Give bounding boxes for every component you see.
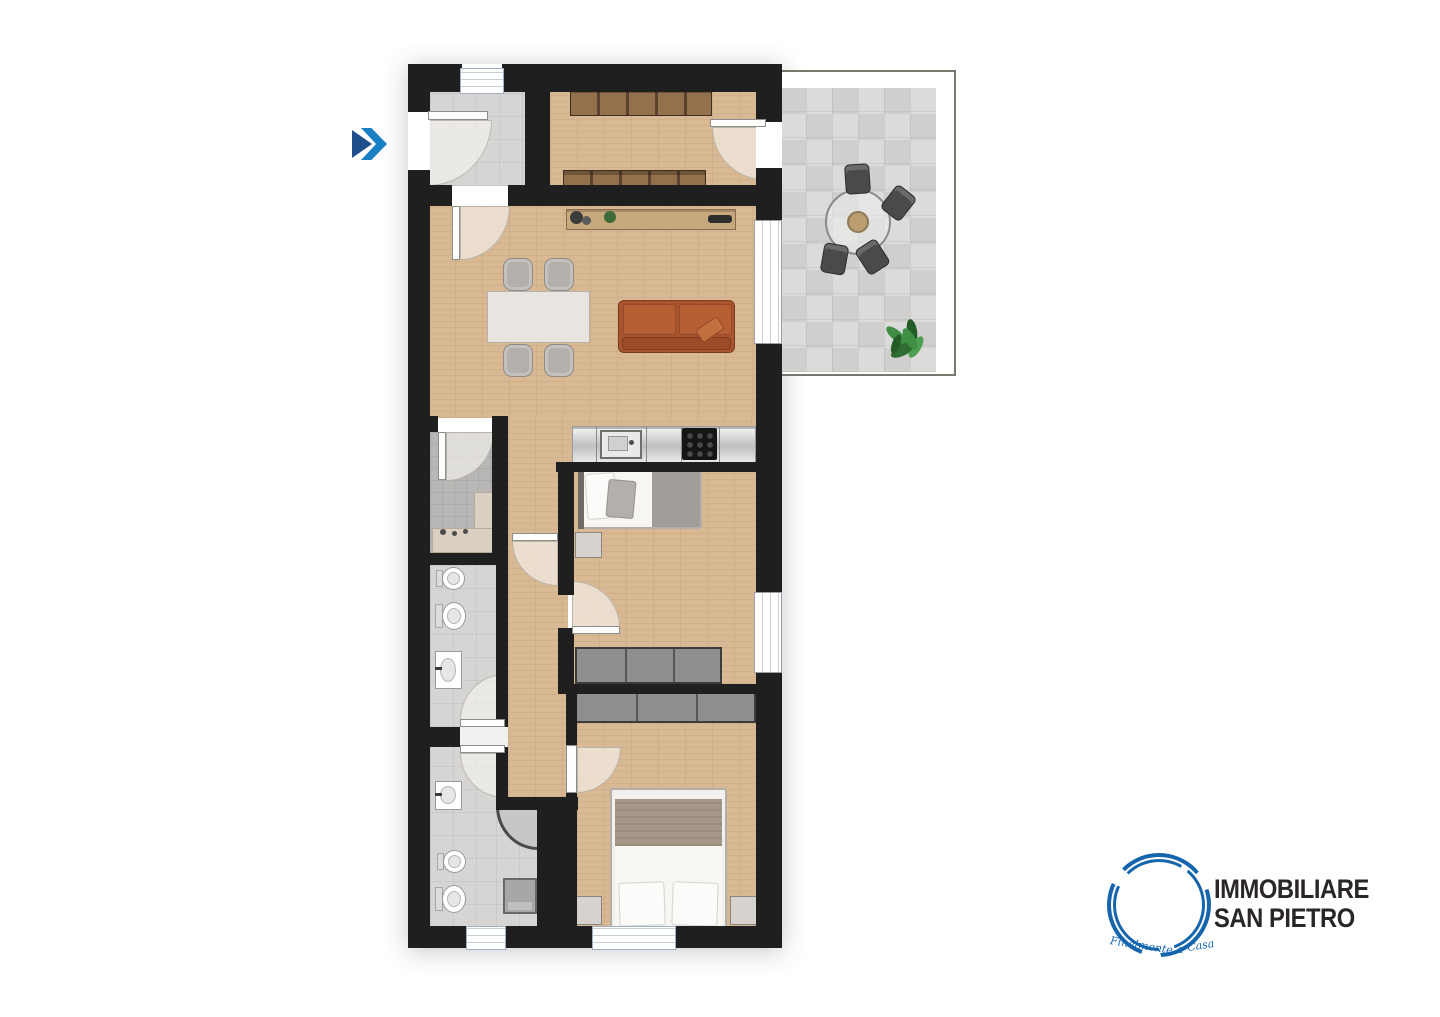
wall (408, 727, 460, 747)
dining-chair-3 (503, 344, 533, 377)
entry-door-opening (408, 112, 430, 170)
wall (556, 462, 782, 472)
terrace-plant (880, 318, 932, 370)
washing-machine (503, 878, 537, 914)
wall (408, 64, 462, 92)
sofa-backrest (622, 337, 731, 350)
bedroom1-window (754, 592, 782, 673)
dining-table (487, 291, 590, 343)
logo-tagline: Finalmente a Casa (1110, 938, 1214, 951)
living-door-leaf (452, 206, 460, 260)
bathroom1-toilet (435, 601, 466, 631)
living-terrace-window (754, 220, 782, 344)
terrace-table-center (847, 211, 869, 233)
wall (492, 416, 508, 432)
terrace-door-opening (756, 122, 782, 168)
bathroom2-window (466, 926, 506, 950)
sofa-cushion-left (623, 304, 676, 335)
floor-plan-page: Finalmente a Casa IMMOBILIARE SAN PIETRO (0, 0, 1440, 1017)
bathroom2-toilet (435, 884, 466, 914)
single-bed-cushion (605, 479, 636, 519)
bathroom2-washbasin (435, 781, 462, 810)
dining-chair-2 (544, 258, 574, 291)
corridor-door-leaf (512, 533, 558, 541)
terrace-door-leaf (710, 119, 766, 127)
tagline-word: a (1177, 943, 1184, 956)
tagline-word: Casa (1186, 937, 1215, 954)
wall (558, 628, 574, 690)
sink-basin (608, 436, 628, 451)
bathroom2-bidet (437, 849, 467, 874)
shower-room-door-leaf (438, 432, 446, 480)
wall (408, 926, 466, 948)
decor-tray (708, 215, 732, 223)
wall (506, 926, 592, 948)
double-bed-pillow-left (618, 881, 666, 927)
shower-fitting (463, 529, 468, 534)
bedroom2-wardrobe (575, 692, 756, 723)
bedroom1-nightstand (575, 532, 602, 558)
sink-faucet (629, 440, 634, 445)
dining-chair-4 (544, 344, 574, 377)
brand-name-line1: IMMOBILIARE (1214, 874, 1369, 905)
bathrooms-doorway-floor (460, 727, 508, 747)
bedroom1-wardrobe (575, 647, 722, 684)
wall (537, 810, 577, 928)
wall (558, 684, 782, 694)
bathroom1-washbasin (435, 651, 462, 689)
counter-divider (646, 427, 647, 462)
wall (756, 672, 782, 948)
wall (508, 185, 782, 206)
closet-cabinet-row-top (570, 88, 712, 116)
wall (756, 64, 782, 122)
bedroom2-door-leaf (566, 745, 577, 793)
shower-fitting (440, 529, 446, 535)
decor-vase-small (582, 216, 591, 225)
bedroom2-nightstand-left (575, 896, 602, 925)
entry-door-leaf (428, 111, 488, 120)
wall (408, 416, 438, 432)
wall (408, 553, 496, 565)
counter-divider (719, 427, 720, 462)
brand-logo: Finalmente a Casa IMMOBILIARE SAN PIETRO (1100, 848, 1390, 973)
bedroom1-door-leaf (572, 626, 620, 634)
double-bed-blanket (615, 799, 722, 846)
wall (566, 694, 577, 745)
double-bed-pillow-right (671, 881, 719, 927)
brand-name-line2: SAN PIETRO (1214, 903, 1355, 934)
wall (558, 462, 574, 595)
wall (566, 793, 577, 810)
terrace-chair-top (844, 163, 871, 195)
single-bed-blanket (652, 469, 700, 527)
wall (492, 432, 508, 565)
bathroom1-bidet (436, 566, 466, 591)
passage-floor (508, 464, 558, 542)
bathroom2-door-leaf (460, 745, 505, 753)
wall (496, 565, 508, 727)
shower-fitting (452, 531, 457, 536)
cooktop (682, 428, 717, 460)
terrace-chair-bottom-left (820, 242, 850, 276)
bedroom2-window (592, 926, 676, 950)
decor-plant-pot (604, 211, 616, 223)
counter-divider (596, 427, 597, 462)
bathroom1-door-leaf (460, 719, 505, 727)
dining-chair-1 (503, 258, 533, 291)
wall (676, 926, 782, 948)
bedroom2-nightstand-right (730, 896, 757, 925)
entrance-window (460, 68, 504, 94)
decor-vase-dark (570, 211, 583, 224)
wall (430, 185, 452, 206)
